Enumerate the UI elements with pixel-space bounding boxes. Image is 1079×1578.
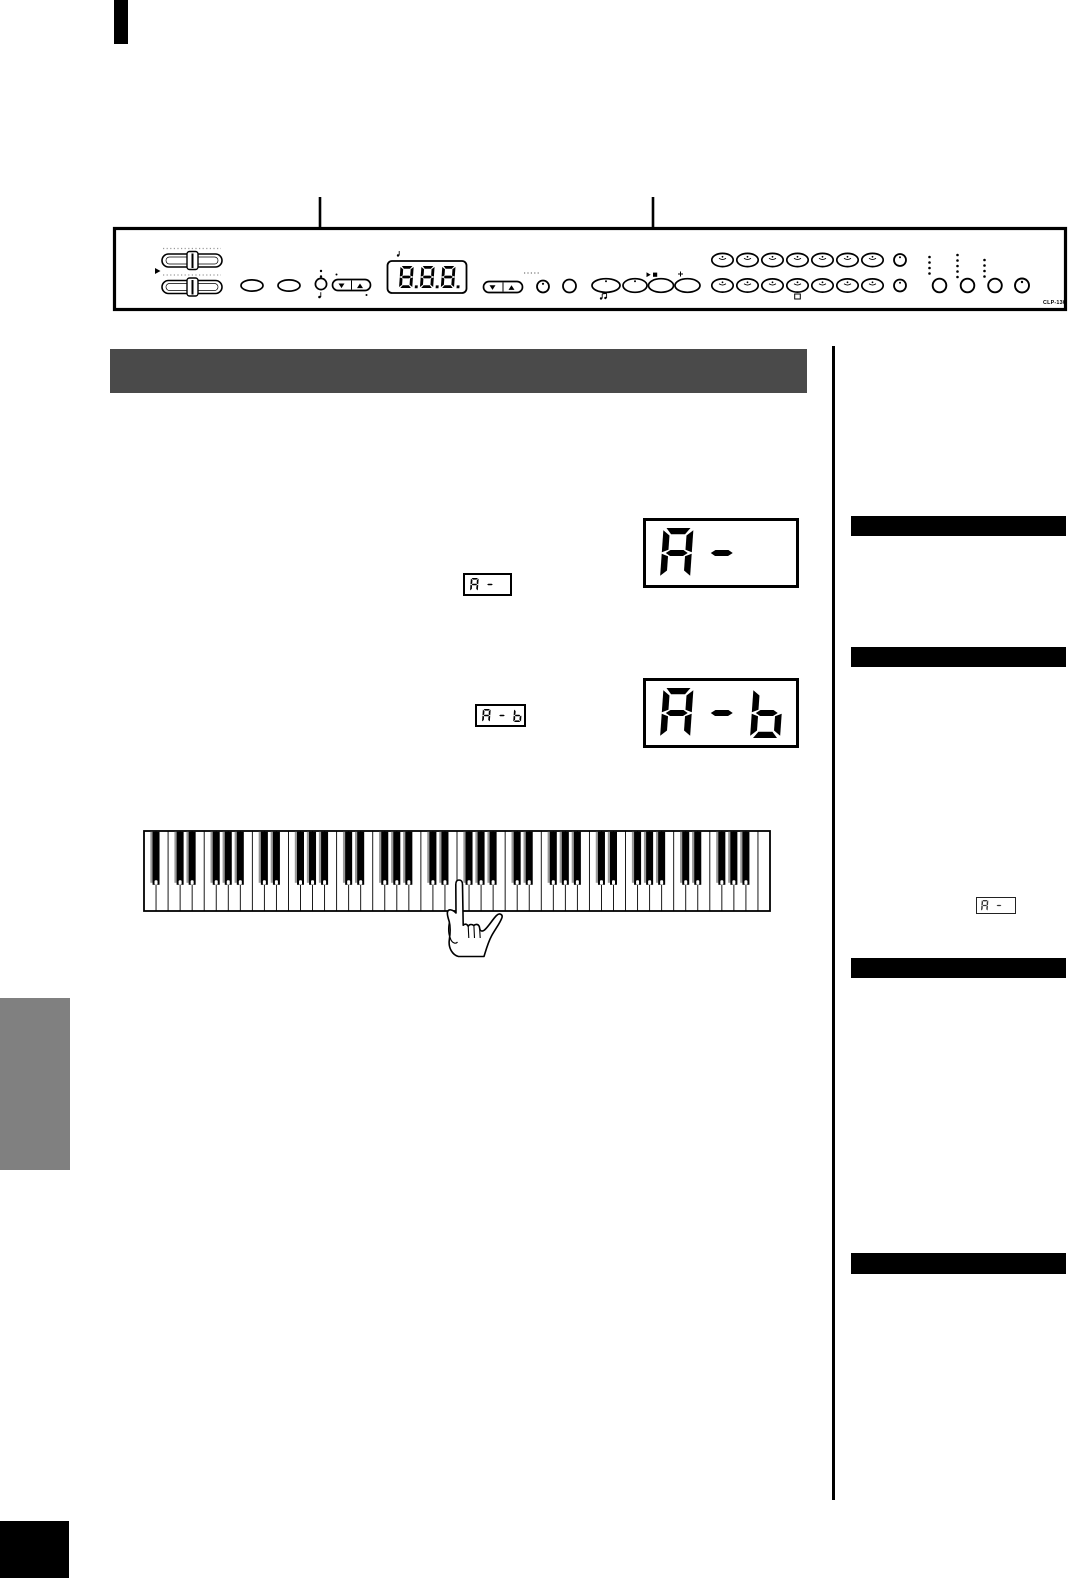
oval-button: [675, 279, 700, 293]
led-dot: [747, 256, 749, 258]
panel-outline: [115, 229, 1066, 310]
led-dot: [772, 256, 774, 258]
led-dot: [983, 264, 986, 267]
black-key-notch: [323, 880, 326, 885]
black-key-shadow: [632, 832, 634, 883]
black-key-shadow: [403, 832, 405, 883]
black-key-shadow: [391, 832, 393, 883]
section-header-bar: [110, 349, 807, 393]
black-key: [345, 832, 352, 885]
led-dot: [634, 280, 636, 282]
black-key-shadow: [174, 832, 176, 883]
black-key-shadow: [343, 832, 345, 883]
large-lcd-step2: [643, 678, 799, 748]
black-key-shadow: [728, 832, 730, 883]
black-key-shadow: [680, 832, 682, 883]
led-dot: [983, 275, 986, 278]
seven-segment-glyphs: [660, 688, 801, 738]
black-key-shadow: [355, 832, 357, 883]
led-dot: [956, 276, 959, 279]
black-key-notch: [612, 880, 615, 885]
black-key-notch: [648, 880, 651, 885]
black-key-shadow: [223, 832, 225, 883]
round-button: [988, 279, 1002, 293]
led-dot: [956, 254, 959, 257]
inline-lcd-step1: [463, 573, 512, 596]
black-key: [237, 832, 244, 885]
black-key-notch: [179, 880, 182, 885]
page-number-block: [0, 1521, 69, 1578]
oval-button: [241, 280, 263, 291]
black-key-shadow: [259, 832, 261, 883]
black-key-notch: [383, 880, 386, 885]
led-dot: [797, 281, 799, 283]
sidebar-note-bar: [851, 1253, 1066, 1274]
led-dot: [320, 270, 322, 272]
black-key: [550, 832, 557, 885]
black-key-notch: [552, 880, 555, 885]
black-key: [646, 832, 653, 885]
oval-button: [278, 280, 300, 291]
black-key: [393, 832, 400, 885]
round-button: [933, 279, 947, 293]
black-key-shadow: [608, 832, 610, 883]
large-lcd-step1: [643, 518, 799, 588]
black-key-shadow: [548, 832, 550, 883]
black-key: [261, 832, 268, 885]
black-key-notch: [696, 880, 699, 885]
led-dot: [928, 261, 931, 264]
led-dot: [822, 281, 824, 283]
black-key-shadow: [716, 832, 718, 883]
led-dot: [956, 265, 959, 268]
black-key-shadow: [186, 832, 188, 883]
black-key-shadow: [692, 832, 694, 883]
black-key-notch: [275, 880, 278, 885]
black-key: [177, 832, 184, 885]
black-key-notch: [239, 880, 242, 885]
black-key: [405, 832, 412, 885]
black-key: [634, 832, 641, 885]
black-key-notch: [191, 880, 194, 885]
black-key-notch: [732, 880, 735, 885]
black-key-notch: [155, 880, 158, 885]
black-key: [718, 832, 725, 885]
black-key-notch: [684, 880, 687, 885]
black-key: [321, 832, 328, 885]
led-dot: [872, 281, 874, 283]
sidebar-note-bar: [851, 516, 1066, 536]
black-key-notch: [311, 880, 314, 885]
black-key-notch: [227, 880, 230, 885]
led-dot: [928, 272, 931, 275]
led-dot: [899, 282, 901, 284]
black-key-notch: [720, 880, 723, 885]
panel-led-digits: [399, 266, 465, 288]
black-key-shadow: [379, 832, 381, 883]
led-dot: [956, 259, 959, 262]
led-dot: [847, 281, 849, 283]
black-key: [189, 832, 196, 885]
black-key-notch: [263, 880, 266, 885]
inline-lcd-step2: [475, 704, 526, 727]
black-key-notch: [636, 880, 639, 885]
black-key-notch: [407, 880, 410, 885]
led-dot: [899, 256, 901, 258]
panel-model-label: CLP-130: [1043, 300, 1066, 306]
pointing-hand-illustration: [432, 868, 516, 964]
led-dot: [747, 281, 749, 283]
black-key: [658, 832, 665, 885]
black-key-shadow: [596, 832, 598, 883]
play-stop-icon: [653, 273, 657, 277]
black-key-shadow: [560, 832, 562, 883]
round-button: [563, 280, 576, 293]
led-dot: [956, 270, 959, 273]
black-key-notch: [564, 880, 567, 885]
led-dot: [822, 256, 824, 258]
column-divider: [832, 346, 835, 1500]
sidebar-note-bar: [851, 958, 1066, 978]
minus-mark-icon: [336, 274, 338, 276]
black-key-notch: [528, 880, 531, 885]
led-dot: [605, 280, 607, 282]
round-button: [537, 281, 549, 293]
led-dot: [797, 256, 799, 258]
seven-segment-glyphs: [470, 578, 504, 591]
black-key: [297, 832, 304, 885]
black-key-notch: [600, 880, 603, 885]
black-key-notch: [576, 880, 579, 885]
round-button: [1015, 279, 1029, 293]
black-key-shadow: [271, 832, 273, 883]
black-key-shadow: [319, 832, 321, 883]
black-key-shadow: [211, 832, 213, 883]
control-panel-diagram: CLP-130: [110, 195, 1071, 315]
black-key: [526, 832, 533, 885]
black-key: [742, 832, 749, 885]
black-key-shadow: [307, 832, 309, 883]
play-stop-button: [649, 279, 674, 293]
chapter-tab: [0, 998, 70, 1170]
black-key-shadow: [235, 832, 237, 883]
led-dot: [772, 281, 774, 283]
black-key-shadow: [427, 832, 429, 883]
sidebar-note-bar: [851, 647, 1066, 667]
manual-page: CLP-130: [0, 0, 1079, 1578]
black-key-shadow: [656, 832, 658, 883]
seven-segment-glyphs: [482, 709, 532, 722]
round-button: [961, 279, 975, 293]
black-key: [213, 832, 220, 885]
page-top-marker: [114, 0, 128, 44]
black-key-notch: [347, 880, 350, 885]
black-key-shadow: [740, 832, 742, 883]
led-dot: [722, 281, 724, 283]
black-key: [574, 832, 581, 885]
black-key-shadow: [295, 832, 297, 883]
black-key: [357, 832, 364, 885]
black-key: [153, 832, 160, 885]
sidebar-inline-lcd: [976, 897, 1016, 914]
round-button: [894, 280, 906, 292]
led-dot: [983, 270, 986, 273]
control-panel-svg: CLP-130: [110, 195, 1071, 315]
led-dot: [847, 256, 849, 258]
black-key-shadow: [524, 832, 526, 883]
black-key: [598, 832, 605, 885]
black-key-notch: [359, 880, 362, 885]
led-dot: [542, 283, 544, 285]
hand-icon: [432, 868, 516, 964]
led-dot: [872, 256, 874, 258]
led-dot: [320, 275, 322, 277]
plus-mark-icon: [366, 294, 368, 296]
black-key: [610, 832, 617, 885]
black-key: [562, 832, 569, 885]
black-key-notch: [516, 880, 519, 885]
black-key-notch: [395, 880, 398, 885]
black-key: [682, 832, 689, 885]
black-key-notch: [215, 880, 218, 885]
black-key: [273, 832, 280, 885]
led-dot: [1021, 281, 1023, 283]
led-dot: [983, 259, 986, 262]
seven-segment-glyphs: [981, 900, 1012, 911]
led-dot: [928, 267, 931, 270]
black-key-notch: [299, 880, 302, 885]
led-dot: [722, 256, 724, 258]
black-key: [309, 832, 316, 885]
select-rocker-button: [484, 282, 523, 293]
black-key: [381, 832, 388, 885]
black-key: [225, 832, 232, 885]
seven-segment-glyphs: [399, 266, 465, 288]
black-key: [730, 832, 737, 885]
black-key: [694, 832, 701, 885]
black-key-shadow: [644, 832, 646, 883]
round-button: [894, 254, 906, 266]
led-dot: [928, 256, 931, 259]
seven-segment-glyphs: [660, 528, 756, 578]
black-key-notch: [744, 880, 747, 885]
black-key-shadow: [572, 832, 574, 883]
black-key-notch: [660, 880, 663, 885]
black-key-shadow: [150, 832, 152, 883]
